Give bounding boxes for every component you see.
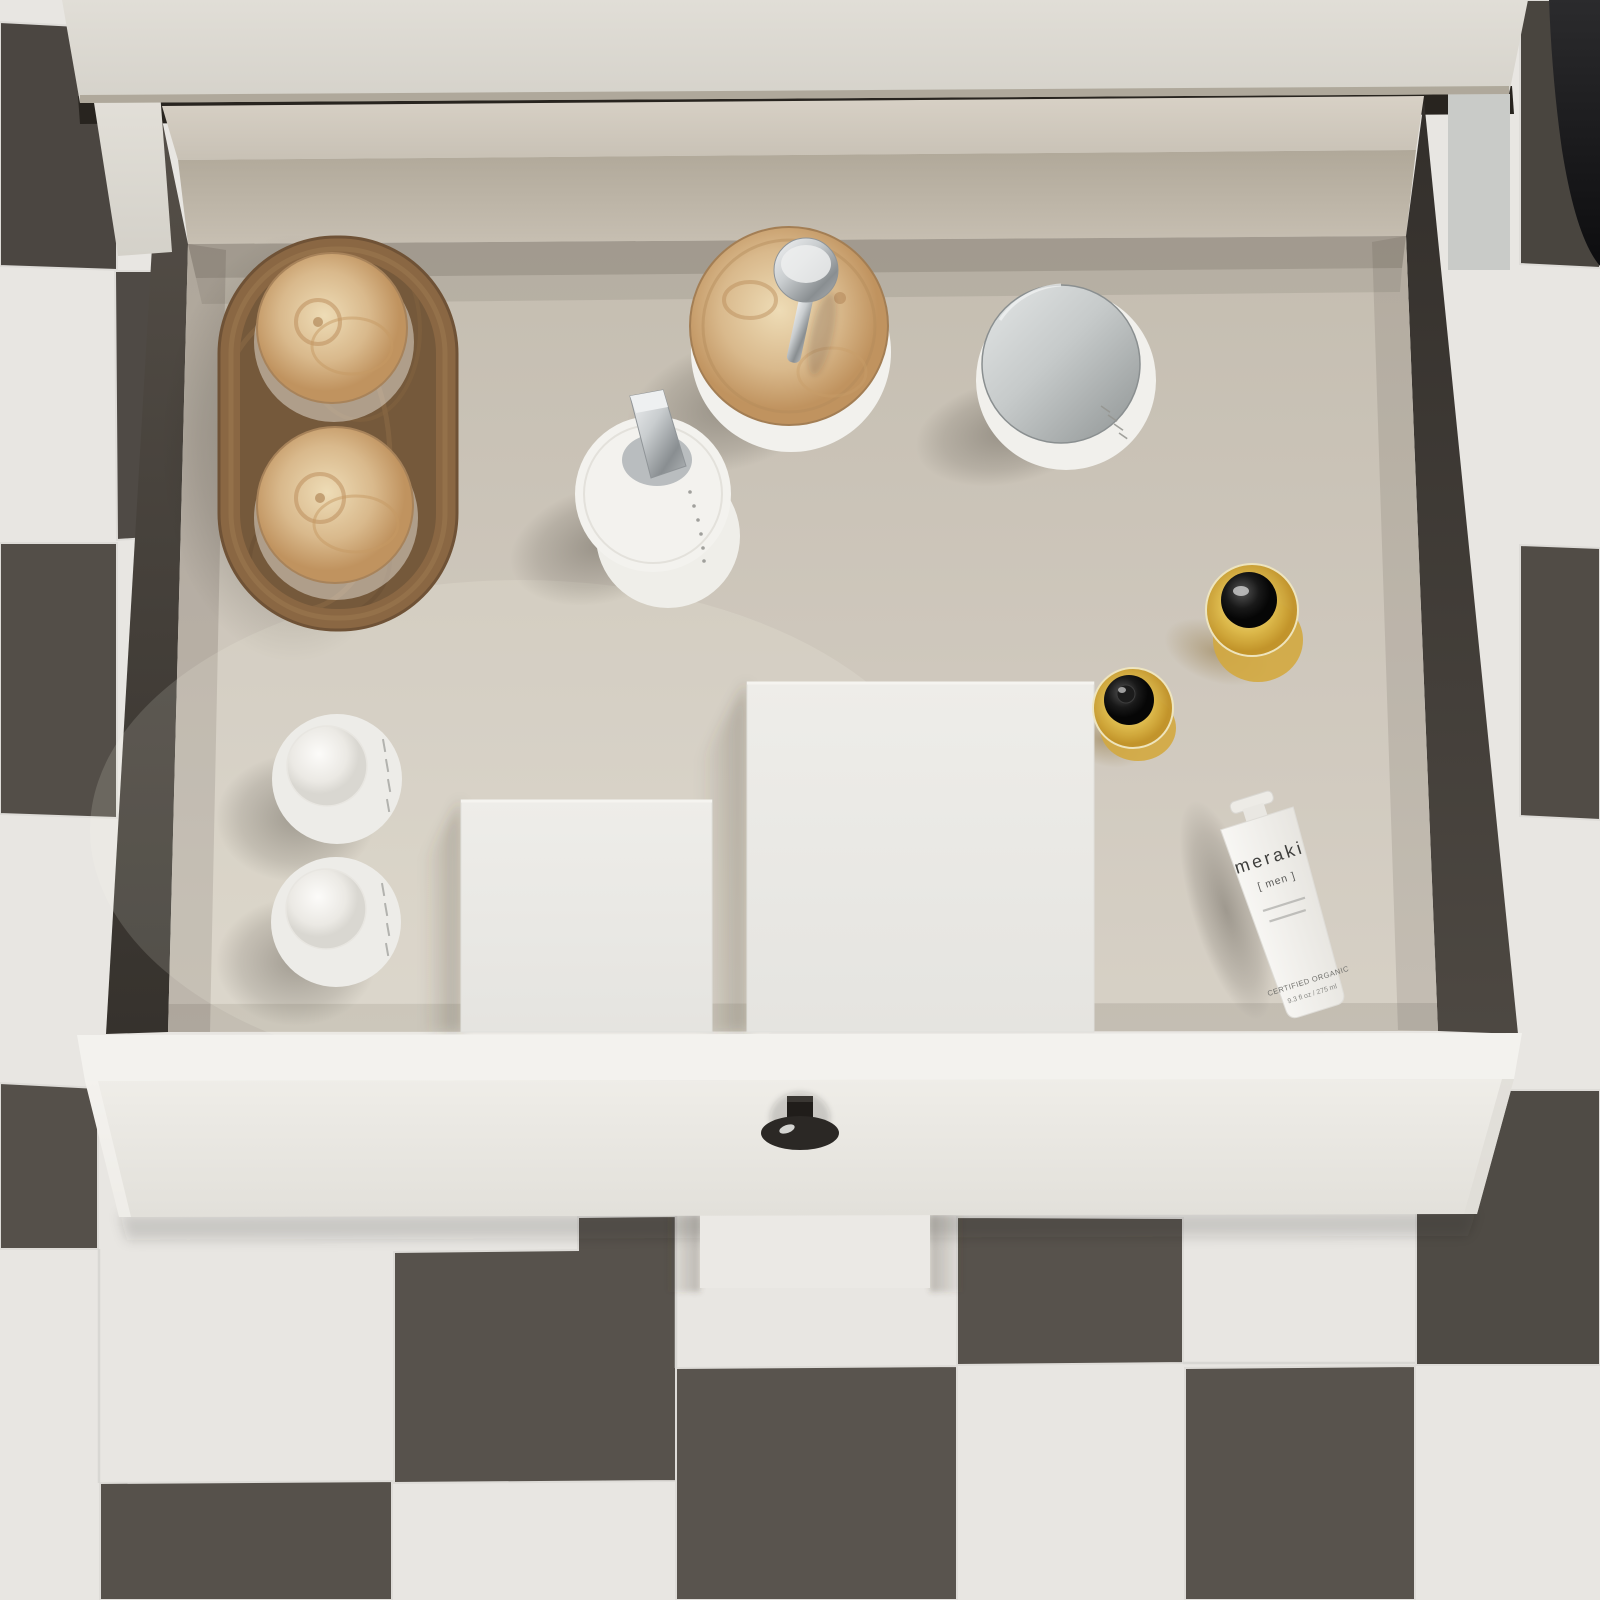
- drawer-front-top-edge: [77, 1033, 1522, 1081]
- amber-large-cap: [1221, 572, 1277, 628]
- dome-cap-2: [286, 869, 366, 949]
- scene-render: meraki [ men ] CERTIFIED ORGANIC 9.3 fl …: [0, 0, 1600, 1600]
- dome-cap-1: [287, 726, 367, 806]
- drawer-front: [77, 1033, 1522, 1217]
- jar-wood-lid-1: [257, 253, 407, 403]
- bathroom-drawer-scene: meraki [ men ] CERTIFIED ORGANIC 9.3 fl …: [0, 0, 1600, 1600]
- organizer-box-small: [461, 800, 712, 1032]
- vanity-right-leg: [1448, 94, 1510, 270]
- countertop: [62, 0, 1528, 103]
- organizer-box-large: [747, 682, 1094, 1032]
- jar-wood-lid-2: [257, 427, 413, 583]
- pedestal: [664, 1214, 966, 1292]
- under-cabinet-pedestal: [700, 1214, 930, 1288]
- dome-bottle-1: [272, 714, 402, 844]
- soap-dispenser: [690, 227, 891, 452]
- dome-bottle-2: [271, 857, 401, 987]
- cream-jar-chrome-lid: [982, 285, 1140, 443]
- drawer-back-top-edge: [162, 96, 1424, 160]
